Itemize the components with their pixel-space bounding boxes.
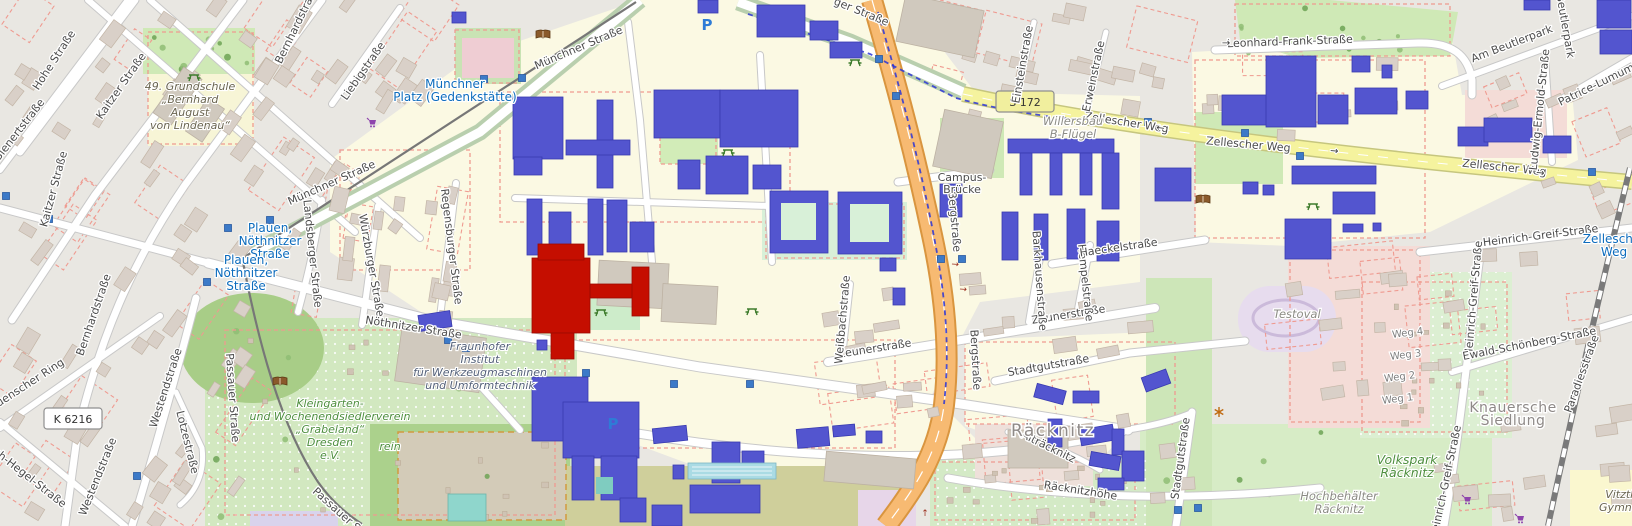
campus-building: [753, 165, 781, 189]
campus-building: [757, 5, 805, 37]
campus-building: [880, 258, 896, 271]
transit-stop-marker: [134, 473, 141, 480]
street-label: →: [1330, 146, 1339, 158]
campus-building: [1352, 56, 1370, 72]
campus-building: [1524, 0, 1550, 10]
svg-text:K 6216: K 6216: [54, 413, 93, 426]
campus-building: [1080, 153, 1092, 195]
transit-stop-marker: [747, 381, 754, 388]
svg-text:P: P: [702, 16, 713, 34]
campus-building: [1020, 153, 1032, 195]
raecknitz: Räcknitz: [1011, 421, 1095, 441]
street-label: →: [959, 285, 968, 296]
selected-building-part: [551, 333, 574, 359]
campus-building: [720, 90, 798, 147]
campus-building: [620, 498, 646, 522]
campus-building: [866, 431, 882, 443]
selected-building-part: [632, 267, 649, 316]
campus-building: [698, 0, 718, 13]
campus-building: [563, 402, 639, 458]
campus-building: [1484, 118, 1532, 142]
road-shield-k6216: K 6216: [44, 408, 102, 429]
campus-building: [1102, 153, 1119, 209]
campus-building: [1243, 182, 1258, 194]
campus-building: [893, 288, 905, 305]
map-viewport[interactable]: PP S 172K 6216 Hohe StraßeKaitzer Straße…: [0, 0, 1632, 526]
campus-building: [654, 90, 720, 138]
knauersche-siedlung: KnauerscheSiedlung: [1469, 400, 1556, 429]
campus-building: [1122, 451, 1144, 481]
transit-stop-marker: [583, 370, 590, 377]
street-label: →: [951, 260, 960, 271]
campus-building: [810, 21, 838, 40]
transit-stop-marker: [1589, 169, 1596, 176]
campus-building: [572, 456, 594, 500]
campus-building: [566, 140, 630, 155]
volkspark-raecknitz: VolksparkRäcknitz: [1377, 452, 1438, 480]
street-label: ↑: [921, 509, 929, 519]
campus-building: [678, 160, 700, 189]
willersbau-b-fluegel: WillersbauB-Flügel: [1043, 114, 1103, 141]
campus-building: [1333, 192, 1375, 214]
campus-building: [706, 156, 748, 194]
campus-building: [607, 200, 627, 252]
transit-stop-marker: [959, 256, 966, 263]
transit-stop-marker: [519, 75, 526, 82]
campus-building: [1373, 223, 1381, 231]
street-label: →: [1536, 168, 1545, 180]
transit-stop-marker: [893, 93, 900, 100]
verein-fragment: rein: [379, 440, 400, 453]
parking-icon: P: [702, 16, 713, 34]
campus-building: [514, 157, 542, 175]
selected-building-part: [538, 244, 584, 260]
map-canvas[interactable]: PP S 172K 6216 Hohe StraßeKaitzer Straße…: [0, 0, 1632, 526]
transit-stop-marker: [876, 56, 883, 63]
road-shield-s172: S 172: [996, 91, 1054, 112]
campus-building: [1266, 56, 1316, 127]
campus-building: [796, 427, 830, 449]
transit-stop-marker: [1297, 153, 1304, 160]
campus-building: [1406, 91, 1428, 109]
campus-building: [630, 222, 654, 252]
campus-building: [1597, 0, 1631, 28]
transit-stop-marker: [3, 193, 10, 200]
campus-building: [652, 505, 682, 526]
campus-building: [1050, 153, 1062, 195]
campus-building: [690, 485, 760, 513]
campus-building: [1543, 136, 1571, 153]
library-icon: [273, 377, 287, 385]
parking-icon: P: [608, 415, 619, 433]
campus-building: [1318, 95, 1348, 124]
campus-building: [1382, 65, 1392, 78]
transit-stop-marker: [938, 256, 945, 263]
campus-building: [1285, 219, 1331, 259]
campus-building: [1292, 166, 1376, 184]
campus-building: [1008, 139, 1114, 153]
selected-building-part: [532, 258, 590, 333]
transit-stop-marker: [1175, 507, 1182, 514]
campus-building: [833, 424, 856, 437]
campus-building: [588, 199, 603, 255]
library-icon: [1196, 195, 1210, 203]
campus-building: [1073, 391, 1099, 403]
campus-building: [1458, 127, 1488, 146]
campus-building: [830, 42, 862, 58]
street-label: Brücke: [943, 183, 981, 196]
campus-building: [452, 12, 466, 23]
campus-building: [1155, 168, 1191, 201]
campus-building: [1600, 30, 1632, 54]
library-icon: [536, 30, 550, 38]
transit-stop-marker: [225, 225, 232, 232]
transit-stop-marker: [1195, 505, 1202, 512]
campus-building: [673, 465, 684, 479]
transit-stop-marker: [1242, 130, 1249, 137]
testoval: Testoval: [1273, 307, 1321, 321]
street-label: →: [1222, 38, 1230, 49]
campus-building: [1002, 212, 1018, 260]
transit-stop-marker: [204, 279, 211, 286]
campus-building: [652, 425, 687, 443]
campus-building: [1263, 185, 1274, 195]
campus-building: [1343, 224, 1363, 232]
street-label: ←: [1155, 122, 1165, 134]
campus-building: [537, 340, 547, 350]
transit-stop-marker: [671, 381, 678, 388]
selected-building-part: [590, 284, 634, 298]
campus-building: [1355, 88, 1397, 114]
campus-building: [513, 97, 563, 159]
svg-text:P: P: [608, 415, 619, 433]
